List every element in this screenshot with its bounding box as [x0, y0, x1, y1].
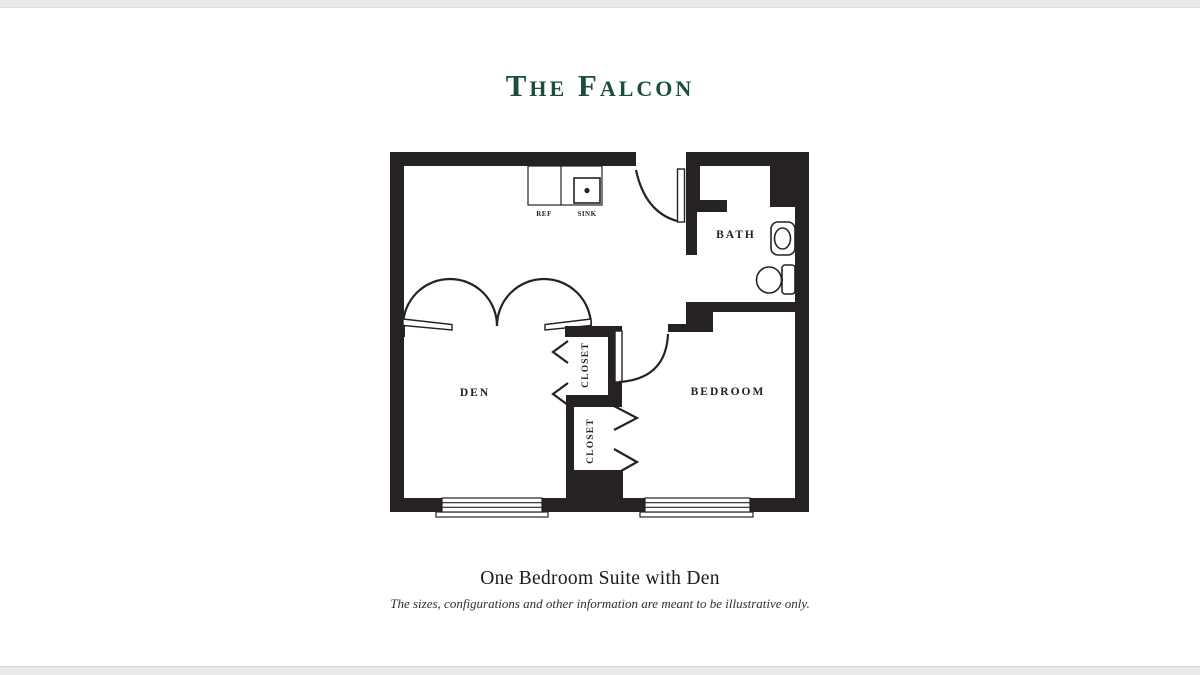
plan-subtitle: One Bedroom Suite with Den	[0, 568, 1200, 590]
bedroom-label: BEDROOM	[691, 386, 766, 398]
toilet-bowl-icon	[757, 267, 782, 293]
bath-label: BATH	[716, 229, 756, 241]
floor-plan-page: The Falcon REF	[0, 0, 1200, 675]
top-wall-right	[686, 152, 809, 166]
top-letterbox-strip	[0, 0, 1200, 8]
den-doors	[403, 279, 591, 330]
bath-fixtures	[757, 222, 796, 294]
bottom-wall-right	[750, 498, 809, 512]
upper-closet-label: CLOSET	[581, 342, 591, 388]
bath-corner-block	[770, 166, 809, 207]
toilet-tank-icon	[782, 265, 795, 294]
window-right	[645, 498, 750, 512]
sink-drain-icon	[584, 188, 589, 193]
bath-left-wall	[686, 212, 697, 255]
lower-closet-left-wall	[566, 407, 574, 470]
bedroom-door	[615, 331, 668, 382]
bath-step-block	[686, 302, 713, 332]
den-wall-stub-right	[565, 326, 608, 337]
entry-door-leaf	[678, 169, 685, 222]
ref-label: REF	[536, 210, 552, 218]
bath-wall-stub	[686, 200, 727, 212]
bottom-letterbox-strip	[0, 666, 1200, 675]
top-wall-left	[390, 152, 636, 166]
page-title: The Falcon	[0, 68, 1200, 104]
floor-plan-drawing: REF SINK	[385, 145, 815, 525]
disclaimer-text: The sizes, configurations and other info…	[0, 596, 1200, 612]
bottom-wall-left	[390, 498, 442, 512]
den-door-leaf-left	[403, 319, 452, 330]
sink-label: SINK	[577, 210, 596, 218]
bathroom-sink-basin-icon	[775, 228, 791, 249]
den-door-arc-right	[497, 279, 591, 326]
kitchen: REF SINK	[528, 166, 602, 218]
entry-door-arc	[636, 170, 677, 221]
bedroom-door-jamb	[668, 324, 686, 332]
lower-closet-bifold-icon	[614, 406, 637, 430]
den-label: DEN	[460, 387, 490, 399]
upper-closet-bifold-icon	[553, 341, 568, 363]
bedroom-door-leaf	[615, 331, 622, 382]
entry-door	[636, 169, 685, 222]
window-sill-left	[436, 512, 548, 517]
bedroom-door-arc	[619, 334, 668, 382]
lower-closet-label: CLOSET	[586, 418, 596, 464]
bottom-wall-center	[542, 498, 645, 512]
between-closets-wall	[566, 395, 622, 407]
window-left	[442, 498, 542, 512]
den-door-arc-left	[403, 279, 497, 326]
window-sill-right	[640, 512, 753, 517]
upper-closet-bifold-icon	[553, 383, 568, 405]
den-wall-stub-left	[390, 326, 405, 337]
